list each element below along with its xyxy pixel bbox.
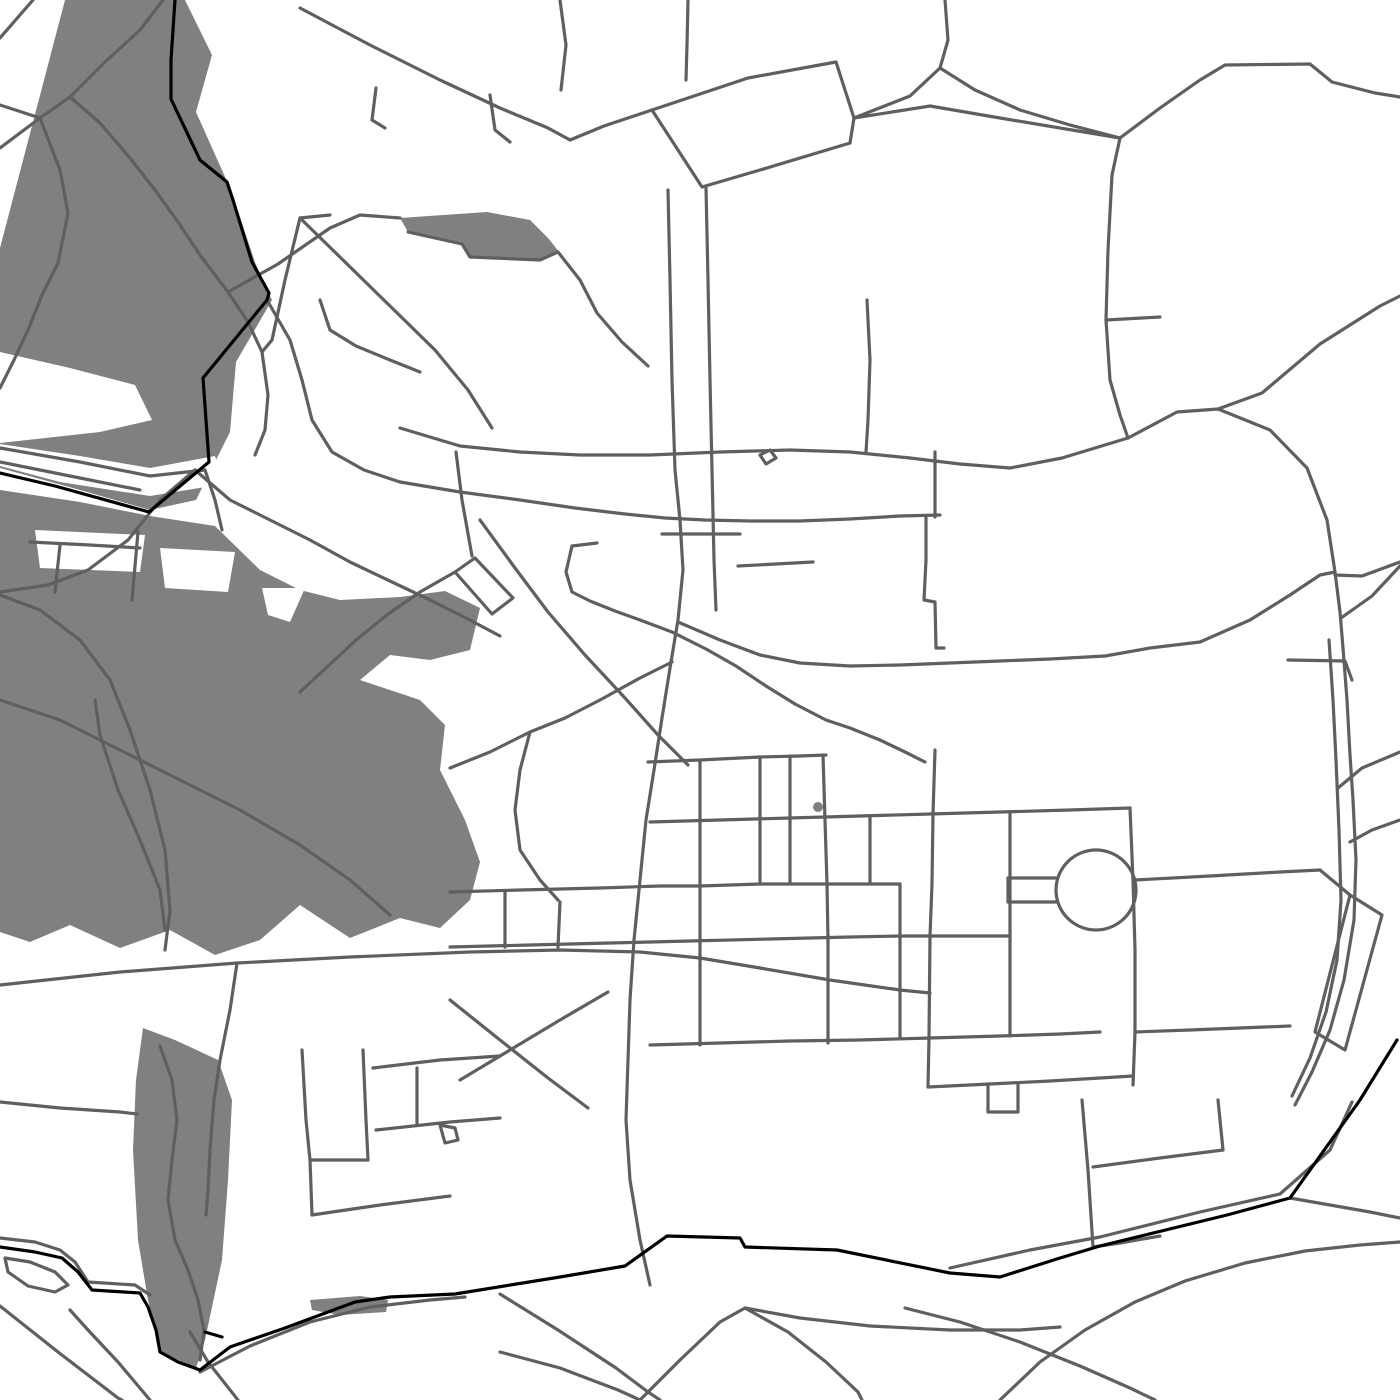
road-line (686, 0, 688, 80)
poi-dots-layer (813, 802, 823, 812)
map-canvas (0, 0, 1400, 1400)
map-viewport (0, 0, 1400, 1400)
map-dot (813, 802, 823, 812)
road-line (558, 902, 560, 947)
white-pocket-b (160, 548, 235, 592)
white-pocket-a (35, 530, 145, 572)
